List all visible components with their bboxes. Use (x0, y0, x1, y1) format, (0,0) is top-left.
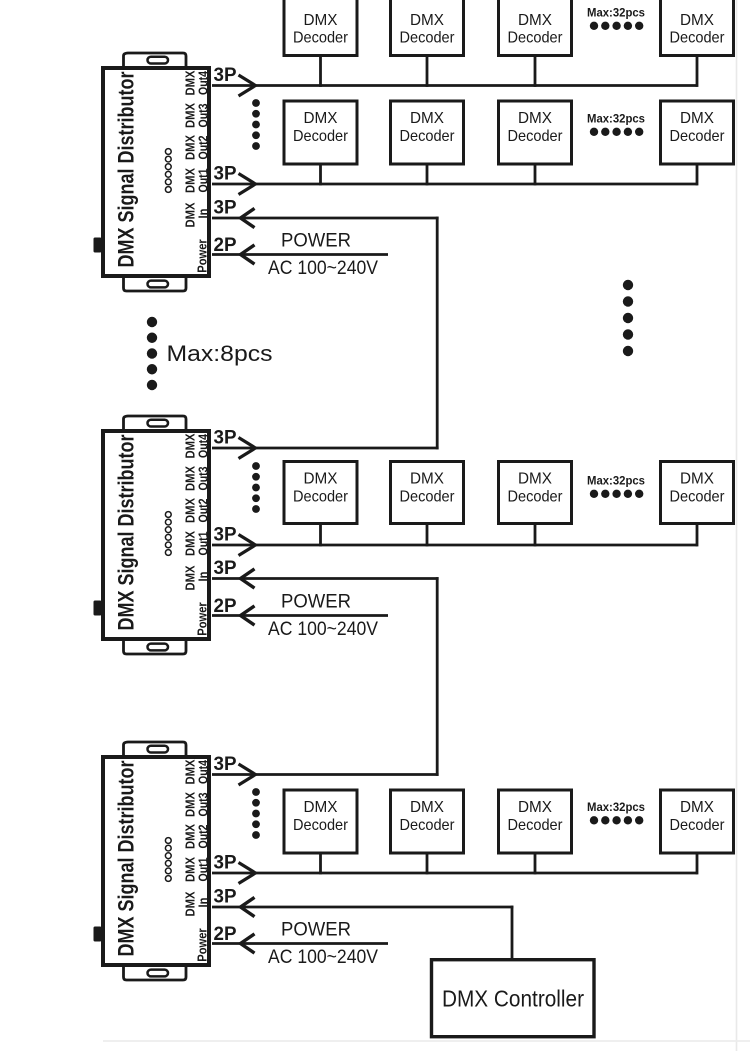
svg-text:3P: 3P (214, 525, 237, 546)
svg-text:Decoder: Decoder (400, 489, 456, 506)
svg-text:Out1: Out1 (196, 858, 211, 882)
svg-text:Decoder: Decoder (293, 489, 349, 506)
svg-text:Out4: Out4 (196, 433, 211, 458)
svg-text:Out3: Out3 (196, 104, 211, 128)
svg-text:2P: 2P (214, 235, 237, 256)
svg-text:DMX: DMX (680, 110, 714, 127)
svg-text:DMX: DMX (680, 12, 714, 29)
svg-text:DMX Signal Distributor: DMX Signal Distributor (114, 434, 139, 630)
svg-text:DMX: DMX (410, 799, 444, 816)
svg-text:Decoder: Decoder (508, 817, 564, 834)
svg-text:Out1: Out1 (196, 169, 211, 193)
svg-text:DMX: DMX (304, 110, 338, 127)
svg-text:Decoder: Decoder (293, 817, 349, 834)
svg-text:Decoder: Decoder (508, 29, 564, 46)
svg-text:DMX Signal Distributor: DMX Signal Distributor (114, 71, 139, 267)
svg-text:Max:32pcs: Max:32pcs (587, 800, 645, 814)
svg-text:DMX: DMX (304, 12, 338, 29)
svg-text:DMX: DMX (680, 471, 714, 488)
svg-text:DMX Controller: DMX Controller (442, 986, 584, 1012)
svg-text:POWER: POWER (281, 591, 351, 613)
svg-text:Decoder: Decoder (508, 489, 564, 506)
svg-text:3P: 3P (214, 428, 237, 449)
svg-text:Out4: Out4 (196, 759, 211, 784)
svg-text:AC 100~240V: AC 100~240V (268, 257, 378, 279)
svg-text:DMX Signal Distributor: DMX Signal Distributor (114, 760, 139, 956)
svg-text:Max:32pcs: Max:32pcs (587, 474, 645, 488)
svg-text:Decoder: Decoder (293, 128, 349, 145)
svg-text:Out3: Out3 (196, 793, 211, 817)
svg-text:3P: 3P (214, 65, 237, 86)
svg-text:Decoder: Decoder (293, 29, 349, 46)
svg-text:DMX: DMX (410, 12, 444, 29)
svg-text:DMX: DMX (304, 799, 338, 816)
svg-text:POWER: POWER (281, 919, 351, 941)
svg-text:3P: 3P (214, 558, 237, 579)
svg-text:Decoder: Decoder (670, 489, 726, 506)
svg-text:DMX: DMX (518, 110, 552, 127)
svg-text:Decoder: Decoder (400, 128, 456, 145)
svg-text:2P: 2P (214, 924, 237, 945)
svg-text:In: In (196, 208, 211, 218)
svg-text:3P: 3P (214, 754, 237, 775)
svg-text:Decoder: Decoder (670, 29, 726, 46)
svg-text:Power: Power (195, 602, 210, 636)
svg-text:DMX: DMX (410, 110, 444, 127)
svg-text:Max:8pcs: Max:8pcs (167, 341, 273, 366)
svg-text:Out4: Out4 (196, 70, 211, 95)
svg-text:DMX: DMX (680, 799, 714, 816)
svg-text:In: In (196, 571, 211, 581)
svg-text:DMX: DMX (518, 471, 552, 488)
svg-text:Decoder: Decoder (400, 29, 456, 46)
svg-text:3P: 3P (214, 853, 237, 874)
svg-text:AC 100~240V: AC 100~240V (268, 618, 378, 640)
svg-text:Max:32pcs: Max:32pcs (587, 6, 645, 20)
svg-text:Out3: Out3 (196, 467, 211, 491)
svg-text:Max:32pcs: Max:32pcs (587, 112, 645, 126)
svg-text:AC 100~240V: AC 100~240V (268, 946, 378, 968)
svg-text:3P: 3P (214, 164, 237, 185)
svg-text:Out1: Out1 (196, 532, 211, 556)
svg-text:3P: 3P (214, 887, 237, 908)
svg-text:3P: 3P (214, 198, 237, 219)
svg-text:POWER: POWER (281, 230, 351, 252)
svg-text:DMX: DMX (518, 12, 552, 29)
svg-text:Out2: Out2 (196, 825, 211, 849)
svg-text:Decoder: Decoder (670, 817, 726, 834)
svg-text:Decoder: Decoder (670, 128, 726, 145)
svg-text:2P: 2P (214, 596, 237, 617)
svg-text:DMX: DMX (518, 799, 552, 816)
svg-text:Decoder: Decoder (400, 817, 456, 834)
svg-text:Decoder: Decoder (508, 128, 564, 145)
svg-text:Out2: Out2 (196, 136, 211, 160)
svg-text:Power: Power (195, 239, 210, 273)
svg-text:DMX: DMX (410, 471, 444, 488)
svg-text:DMX: DMX (304, 471, 338, 488)
svg-text:Power: Power (195, 928, 210, 962)
svg-text:Out2: Out2 (196, 499, 211, 523)
svg-text:In: In (196, 897, 211, 907)
